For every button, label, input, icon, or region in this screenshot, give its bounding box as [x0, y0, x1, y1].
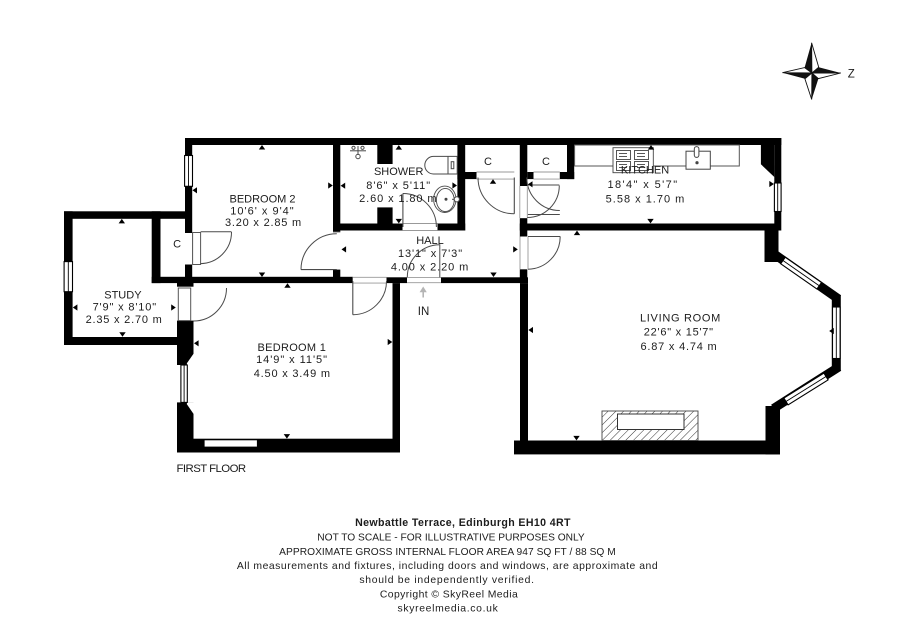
svg-text:BEDROOM 1: BEDROOM 1	[257, 342, 326, 354]
svg-text:2.35 x 2.70 m: 2.35 x 2.70 m	[86, 314, 163, 326]
svg-text:14'9" x 11'5": 14'9" x 11'5"	[256, 354, 328, 366]
svg-text:APPROXIMATE GROSS INTERNAL FLO: APPROXIMATE GROSS INTERNAL FLOOR AREA 94…	[279, 547, 616, 558]
svg-text:KITCHEN: KITCHEN	[621, 165, 669, 177]
svg-text:4.00 x 2.20 m: 4.00 x 2.20 m	[391, 262, 469, 274]
svg-text:Copyright © SkyReel Media: Copyright © SkyReel Media	[380, 590, 518, 601]
svg-text:22'6" x 15'7": 22'6" x 15'7"	[644, 326, 714, 338]
svg-text:HALL: HALL	[416, 235, 444, 247]
svg-text:SHOWER: SHOWER	[374, 166, 424, 178]
svg-text:C: C	[173, 238, 181, 250]
svg-text:10'6' x 9'4": 10'6' x 9'4"	[230, 205, 294, 217]
svg-text:5.58 x 1.70 m: 5.58 x 1.70 m	[606, 193, 686, 205]
svg-text:C: C	[484, 156, 492, 168]
svg-text:2.60 x 1.80 m: 2.60 x 1.80 m	[359, 193, 437, 205]
svg-text:should be independently verifi: should be independently verified.	[359, 575, 534, 586]
svg-text:NOT TO SCALE - FOR ILLUSTRATIV: NOT TO SCALE - FOR ILLUSTRATIVE PURPOSES…	[317, 532, 585, 543]
svg-text:3.20 x 2.85 m: 3.20 x 2.85 m	[225, 217, 302, 229]
svg-text:BEDROOM 2: BEDROOM 2	[229, 194, 295, 206]
svg-text:STUDY: STUDY	[104, 290, 142, 302]
svg-text:skyreelmedia.co.uk: skyreelmedia.co.uk	[398, 604, 499, 615]
svg-text:FIRST FLOOR: FIRST FLOOR	[177, 463, 246, 475]
svg-text:C: C	[542, 156, 550, 168]
svg-text:7'9" x 8'10": 7'9" x 8'10"	[93, 302, 157, 314]
svg-text:18'4" x 5'7": 18'4" x 5'7"	[607, 179, 678, 191]
svg-text:LIVING ROOM: LIVING ROOM	[640, 313, 721, 325]
svg-text:IN: IN	[418, 306, 430, 318]
svg-text:4.50 x 3.49 m: 4.50 x 3.49 m	[254, 368, 331, 380]
svg-text:All measurements and fixtures,: All measurements and fixtures, including…	[237, 561, 658, 572]
svg-text:8'6" x 5'11": 8'6" x 5'11"	[366, 180, 431, 192]
svg-text:13'1" x 7'3": 13'1" x 7'3"	[398, 248, 463, 260]
svg-text:Z: Z	[848, 68, 855, 80]
svg-text:6.87 x 4.74 m: 6.87 x 4.74 m	[640, 341, 717, 353]
svg-text:Newbattle Terrace, Edinburgh E: Newbattle Terrace, Edinburgh EH10 4RT	[355, 517, 571, 529]
